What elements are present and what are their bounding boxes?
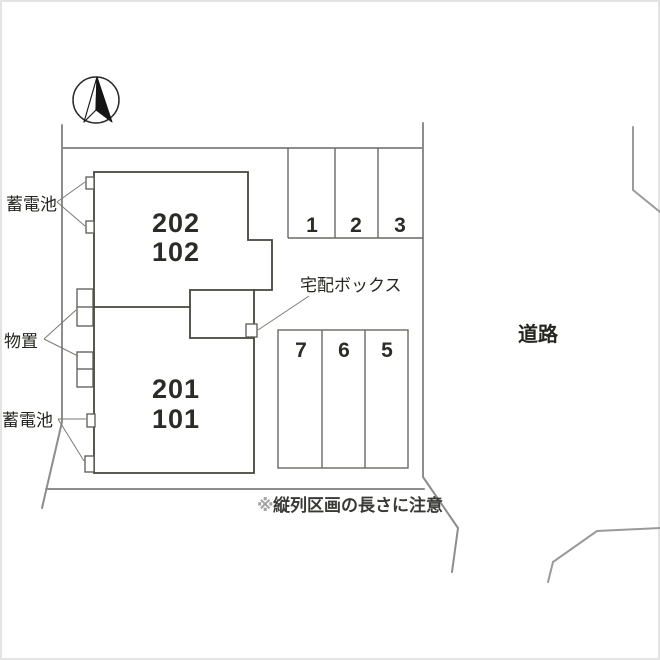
unit-number: 101 bbox=[152, 404, 200, 434]
parking-row-middle: 7 6 5 bbox=[278, 330, 408, 468]
note-text: 縦列区画の長さに注意 bbox=[273, 495, 443, 515]
delivery-box bbox=[246, 324, 257, 337]
storage-label: 物置 bbox=[4, 332, 38, 351]
north-arrow-icon bbox=[73, 77, 119, 123]
battery-label-top: 蓄電池 bbox=[6, 195, 57, 214]
neighbor-edge-bottom-right bbox=[548, 528, 660, 582]
parking-space-number: 7 bbox=[295, 339, 307, 362]
note-mark: ※ bbox=[257, 496, 274, 515]
parking-space-number: 6 bbox=[338, 339, 350, 362]
site-plan-drawing: 1 2 3 7 6 5 202 102 201 101 bbox=[0, 0, 660, 660]
leader-line bbox=[44, 310, 76, 339]
delivery-box-label: 宅配ボックス bbox=[300, 276, 402, 295]
battery-box bbox=[87, 414, 95, 427]
parking-space-number: 1 bbox=[306, 214, 318, 237]
entrance-porch-outline bbox=[190, 290, 254, 338]
battery-box bbox=[86, 177, 94, 189]
unit-number: 102 bbox=[152, 237, 200, 267]
battery-label-bottom: 蓄電池 bbox=[2, 411, 53, 430]
neighbor-edge-top-right bbox=[633, 127, 660, 212]
parking-space-number: 5 bbox=[381, 339, 393, 362]
unit-number: 202 bbox=[152, 208, 200, 238]
parking-space-number: 2 bbox=[350, 214, 362, 237]
site-plan-page: 1 2 3 7 6 5 202 102 201 101 bbox=[0, 0, 660, 660]
parking-space-number: 3 bbox=[394, 214, 406, 237]
parking-row-top: 1 2 3 bbox=[288, 148, 423, 238]
boundary-left bbox=[42, 125, 62, 508]
unit-number: 201 bbox=[152, 374, 200, 404]
building: 202 102 201 101 bbox=[94, 172, 272, 473]
leader-line bbox=[258, 296, 309, 330]
battery-box bbox=[86, 221, 94, 233]
leader-line bbox=[58, 419, 84, 461]
road-label: 道路 bbox=[518, 322, 559, 346]
battery-box bbox=[85, 456, 94, 472]
